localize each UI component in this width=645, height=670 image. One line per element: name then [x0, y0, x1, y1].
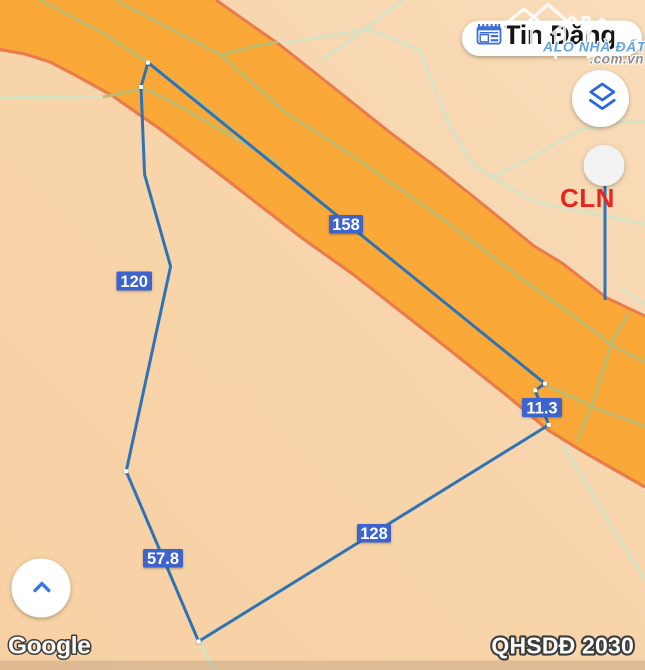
- svg-text:128: 128: [360, 525, 388, 543]
- svg-text:.com.vn: .com.vn: [589, 52, 644, 67]
- svg-text:158: 158: [332, 216, 360, 234]
- svg-text:Google: Google: [8, 633, 91, 660]
- svg-text:120: 120: [120, 273, 148, 291]
- svg-text:57.8: 57.8: [147, 550, 179, 568]
- svg-text:11.3: 11.3: [526, 399, 557, 417]
- svg-text:CLN: CLN: [560, 183, 615, 213]
- svg-text:QHSDĐ 2030: QHSDĐ 2030: [491, 633, 634, 659]
